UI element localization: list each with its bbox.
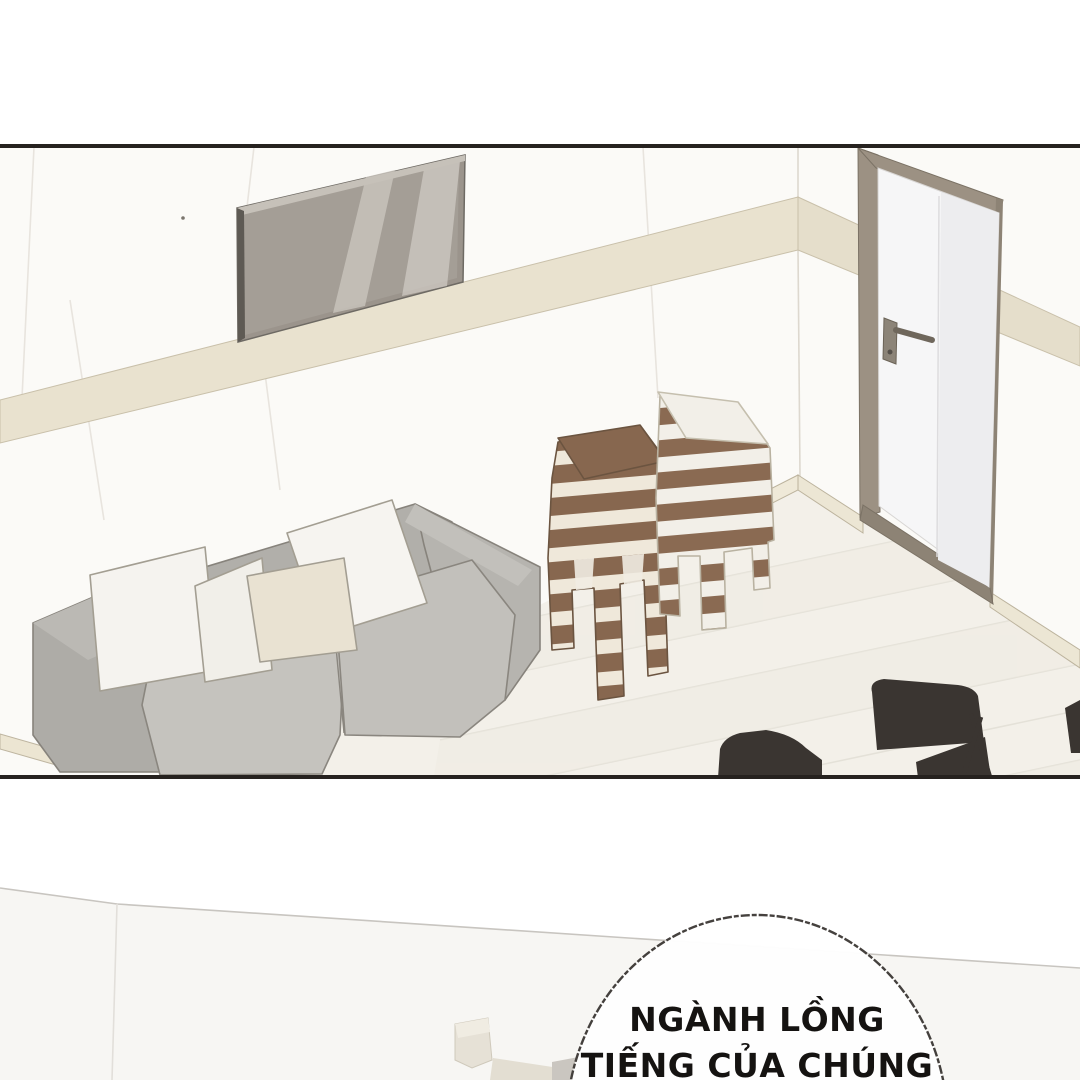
comic-art: NGÀNH LỒNG TIẾNG CỦA CHÚNG [0, 0, 1080, 1080]
panel-1-room [0, 147, 1080, 900]
comic-page: NGÀNH LỒNG TIẾNG CỦA CHÚNG [0, 0, 1080, 1080]
pillow-beige [247, 558, 357, 662]
wall-mark [181, 216, 185, 220]
panel-border-top [0, 144, 1080, 148]
chair-backrest [872, 679, 985, 750]
speech-bubble-line1: NGÀNH LỒNG [629, 995, 885, 1039]
panel-border-bottom [0, 775, 1080, 779]
speech-bubble-line2: TIẾNG CỦA CHÚNG [581, 1041, 933, 1080]
